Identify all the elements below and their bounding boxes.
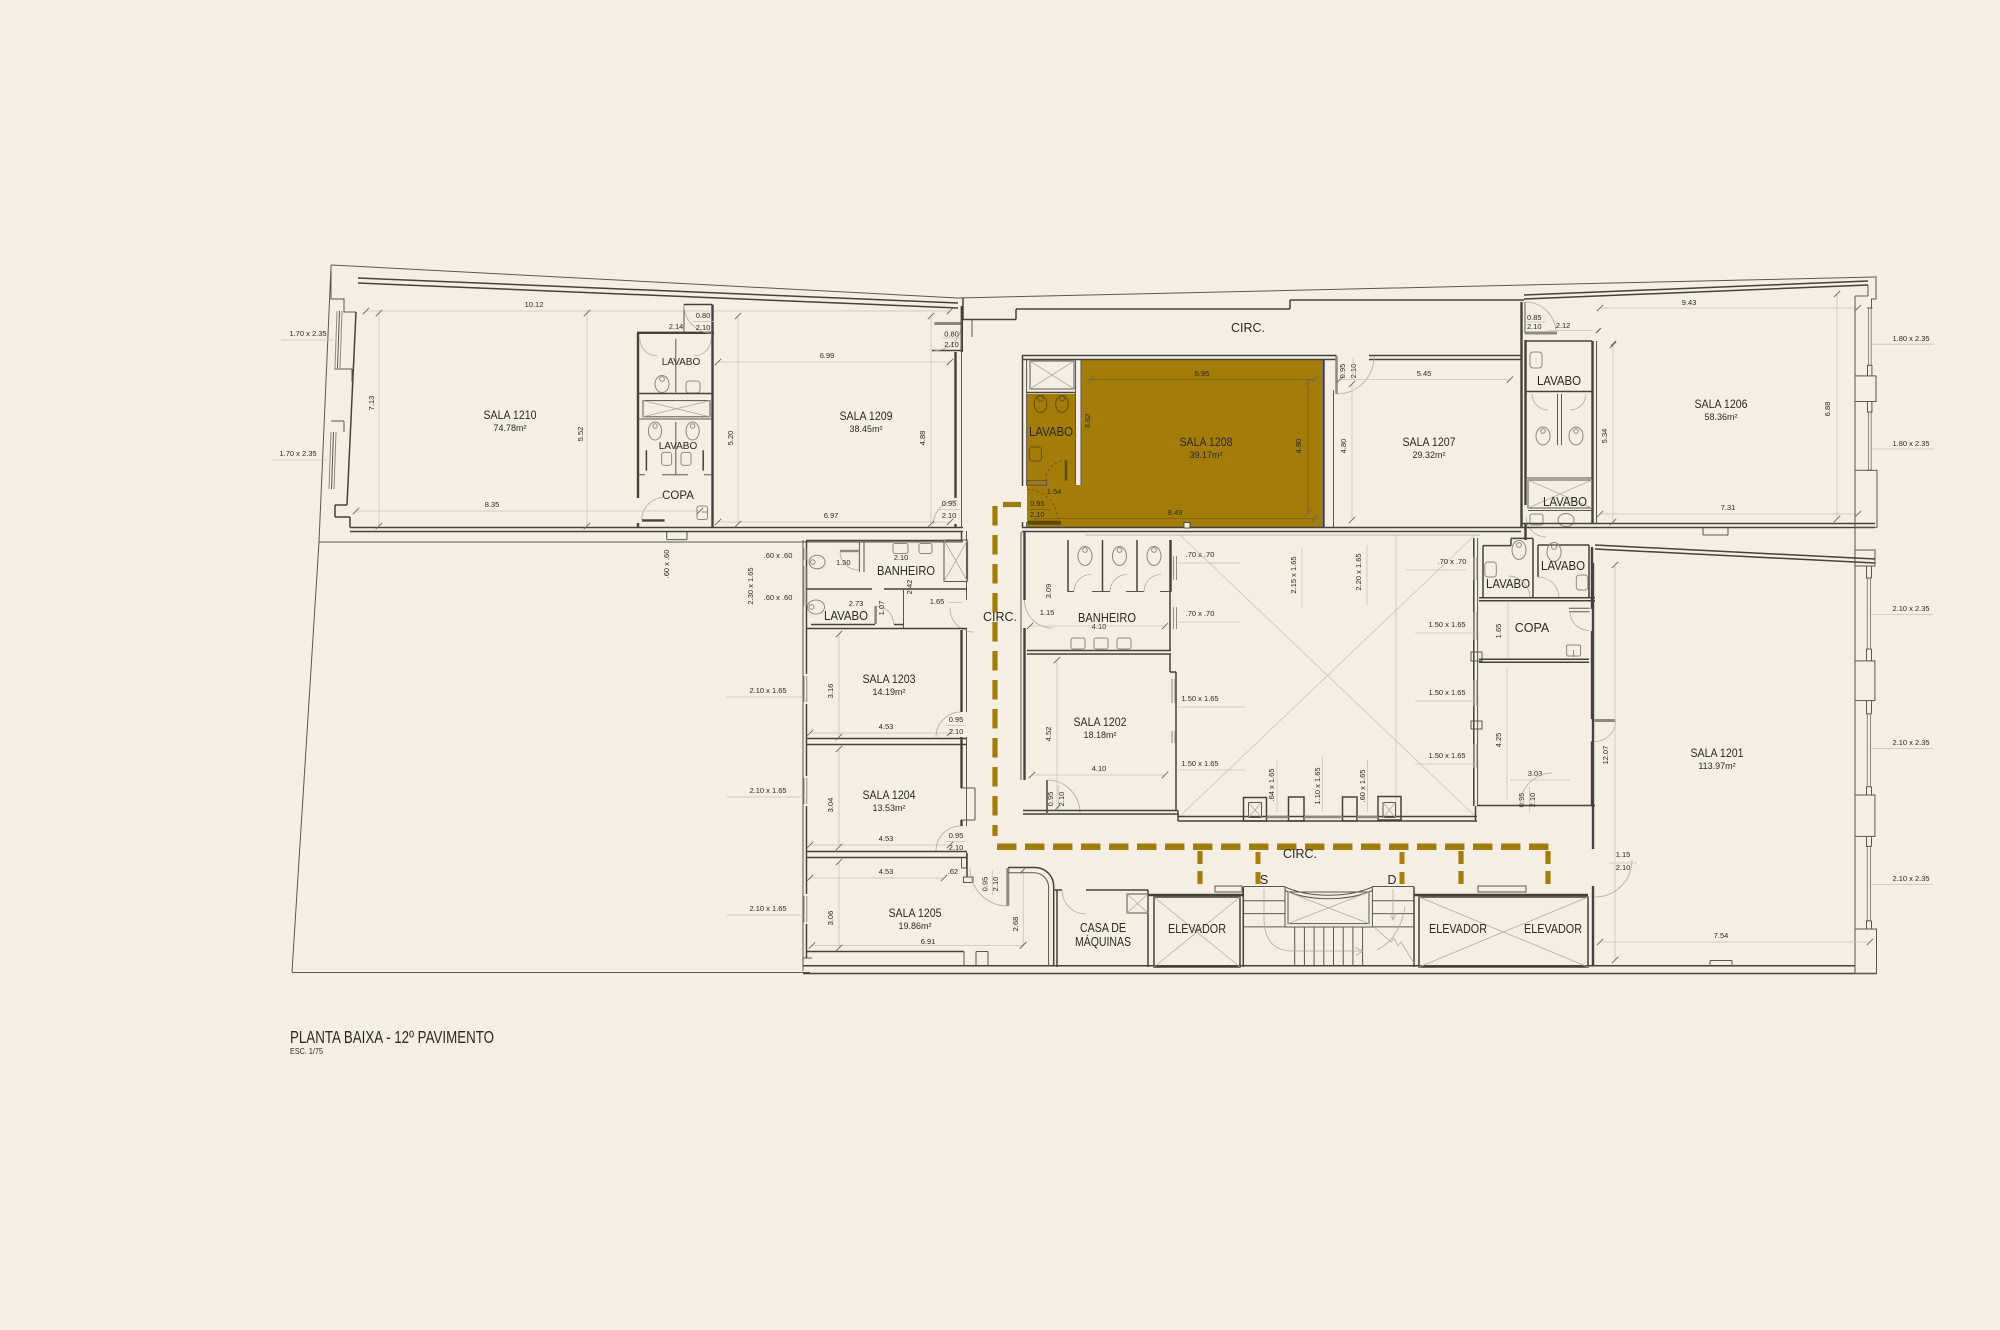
svg-text:SALA 1209: SALA 1209 <box>840 411 893 423</box>
svg-text:LAVABO: LAVABO <box>1543 495 1587 509</box>
svg-text:2.10: 2.10 <box>1527 322 1542 331</box>
svg-text:SALA 1207: SALA 1207 <box>1403 437 1456 449</box>
svg-text:2.10: 2.10 <box>944 340 959 349</box>
svg-text:14.19m²: 14.19m² <box>872 687 905 697</box>
svg-text:1.65: 1.65 <box>1494 624 1503 639</box>
svg-text:7.31: 7.31 <box>1721 503 1736 512</box>
svg-text:4.25: 4.25 <box>1494 733 1503 748</box>
svg-text:39.17m²: 39.17m² <box>1189 450 1222 460</box>
svg-text:113.97m²: 113.97m² <box>1698 761 1735 771</box>
svg-text:1.54: 1.54 <box>1047 487 1062 496</box>
svg-text:0.95: 0.95 <box>949 715 964 724</box>
svg-text:SALA 1210: SALA 1210 <box>484 410 537 422</box>
svg-text:.70 x .70: .70 x .70 <box>1186 609 1215 618</box>
svg-text:1.07: 1.07 <box>877 601 886 616</box>
svg-text:COPA: COPA <box>662 490 694 502</box>
svg-text:0.95: 0.95 <box>981 877 990 892</box>
svg-text:.62: .62 <box>948 867 958 876</box>
svg-text:.70 x .70: .70 x .70 <box>1438 557 1467 566</box>
svg-text:6.97: 6.97 <box>824 511 839 520</box>
svg-text:19.86m²: 19.86m² <box>898 921 931 931</box>
svg-text:.60 x .60: .60 x .60 <box>662 550 671 579</box>
svg-text:2.12: 2.12 <box>1556 321 1571 330</box>
svg-text:3.16: 3.16 <box>826 684 835 699</box>
svg-text:1.50 x 1.65: 1.50 x 1.65 <box>1181 694 1218 703</box>
svg-text:2.10: 2.10 <box>894 553 909 562</box>
svg-text:2.10 x 2.35: 2.10 x 2.35 <box>1892 604 1929 613</box>
svg-text:6.91: 6.91 <box>921 937 936 946</box>
svg-text:PLANTA BAIXA - 12º PAVIMENTO: PLANTA BAIXA - 12º PAVIMENTO <box>290 1027 494 1047</box>
svg-text:1.15: 1.15 <box>1616 850 1631 859</box>
svg-text:4.10: 4.10 <box>1092 622 1107 631</box>
svg-text:6.88: 6.88 <box>1823 402 1832 417</box>
svg-text:SALA 1202: SALA 1202 <box>1074 717 1127 729</box>
svg-text:0.95: 0.95 <box>942 499 957 508</box>
svg-text:0.95: 0.95 <box>949 831 964 840</box>
svg-text:4.80: 4.80 <box>1294 439 1303 454</box>
svg-text:2.10: 2.10 <box>942 511 957 520</box>
svg-text:4.80: 4.80 <box>1339 439 1348 454</box>
svg-text:LAVABO: LAVABO <box>824 609 868 623</box>
svg-text:2.10 x 1.65: 2.10 x 1.65 <box>749 786 786 795</box>
svg-text:3.03: 3.03 <box>1528 769 1543 778</box>
svg-text:MÁQUINAS: MÁQUINAS <box>1075 934 1131 949</box>
svg-text:2.10 x 1.65: 2.10 x 1.65 <box>749 904 786 913</box>
svg-text:SALA 1205: SALA 1205 <box>889 908 942 920</box>
svg-text:1.50 x 1.65: 1.50 x 1.65 <box>1428 688 1465 697</box>
svg-text:58.36m²: 58.36m² <box>1704 412 1737 422</box>
svg-text:ELEVADOR: ELEVADOR <box>1168 922 1226 936</box>
svg-text:1.80 x 2.35: 1.80 x 2.35 <box>1892 334 1929 343</box>
svg-text:S: S <box>1260 873 1268 887</box>
svg-text:CIRC.: CIRC. <box>1231 321 1265 335</box>
svg-text:3.09: 3.09 <box>1044 584 1053 599</box>
svg-text:13.53m²: 13.53m² <box>872 803 905 813</box>
svg-text:D: D <box>1387 873 1396 887</box>
svg-text:SALA 1203: SALA 1203 <box>863 674 916 686</box>
svg-text:10.12: 10.12 <box>525 300 544 309</box>
svg-text:.64 x 1.65: .64 x 1.65 <box>1267 769 1276 802</box>
svg-text:ESC. 1/75: ESC. 1/75 <box>290 1046 323 1056</box>
svg-text:1.15: 1.15 <box>1040 608 1055 617</box>
svg-text:0.95: 0.95 <box>1030 499 1045 508</box>
svg-text:2.10: 2.10 <box>1349 364 1358 379</box>
svg-text:3.04: 3.04 <box>826 798 835 813</box>
svg-text:8.35: 8.35 <box>485 500 500 509</box>
svg-text:6.99: 6.99 <box>820 351 835 360</box>
svg-text:1.10 x 1.65: 1.10 x 1.65 <box>1313 767 1322 804</box>
svg-text:LAVABO: LAVABO <box>659 441 698 452</box>
svg-text:2.10: 2.10 <box>1030 510 1045 519</box>
svg-text:SALA 1208: SALA 1208 <box>1180 437 1233 449</box>
svg-text:CASA DE: CASA DE <box>1080 921 1126 935</box>
svg-text:1.50 x 1.65: 1.50 x 1.65 <box>1428 620 1465 629</box>
svg-text:CIRC.: CIRC. <box>983 610 1017 624</box>
svg-text:1.50 x 1.65: 1.50 x 1.65 <box>1428 751 1465 760</box>
svg-text:LAVABO: LAVABO <box>1541 559 1585 573</box>
svg-text:29.32m²: 29.32m² <box>1412 450 1445 460</box>
svg-text:0.80: 0.80 <box>696 311 711 320</box>
svg-text:2.30 x 1.65: 2.30 x 1.65 <box>746 567 755 604</box>
svg-text:BANHEIRO: BANHEIRO <box>1078 611 1136 625</box>
svg-text:8.49: 8.49 <box>1168 508 1183 517</box>
svg-text:4.53: 4.53 <box>879 867 894 876</box>
svg-text:5.52: 5.52 <box>576 427 585 442</box>
svg-text:0.95: 0.95 <box>1338 364 1347 379</box>
svg-text:5.34: 5.34 <box>1600 429 1609 444</box>
svg-text:CIRC.: CIRC. <box>1283 847 1317 861</box>
svg-text:ELEVADOR: ELEVADOR <box>1429 922 1487 936</box>
svg-text:2.10 x 2.35: 2.10 x 2.35 <box>1892 738 1929 747</box>
svg-text:2.10: 2.10 <box>696 323 711 332</box>
svg-text:7.54: 7.54 <box>1714 931 1729 940</box>
svg-text:2.10 x 1.65: 2.10 x 1.65 <box>749 686 786 695</box>
svg-text:4.88: 4.88 <box>918 431 927 446</box>
svg-text:2.10: 2.10 <box>1616 863 1631 872</box>
svg-text:3.62: 3.62 <box>1083 414 1092 429</box>
svg-text:LAVABO: LAVABO <box>1029 425 1073 439</box>
svg-text:2.73: 2.73 <box>849 599 864 608</box>
svg-text:38.45m²: 38.45m² <box>849 424 882 434</box>
svg-text:3.06: 3.06 <box>826 911 835 926</box>
svg-text:2.42: 2.42 <box>905 580 914 595</box>
svg-text:0.85: 0.85 <box>1527 313 1542 322</box>
svg-text:0.80: 0.80 <box>944 330 959 339</box>
svg-text:1.80 x 2.35: 1.80 x 2.35 <box>1892 439 1929 448</box>
svg-text:ELEVADOR: ELEVADOR <box>1524 922 1582 936</box>
svg-text:4.53: 4.53 <box>879 722 894 731</box>
svg-text:5.45: 5.45 <box>1417 369 1432 378</box>
svg-text:2.10 x 2.35: 2.10 x 2.35 <box>1892 874 1929 883</box>
svg-text:4.10: 4.10 <box>1092 764 1107 773</box>
svg-text:SALA 1204: SALA 1204 <box>863 790 917 802</box>
svg-text:2.15 x 1.65: 2.15 x 1.65 <box>1289 556 1298 593</box>
svg-text:2.20 x 1.65: 2.20 x 1.65 <box>1354 553 1363 590</box>
svg-text:12.07: 12.07 <box>1601 746 1610 765</box>
svg-text:4.53: 4.53 <box>879 834 894 843</box>
svg-text:74.78m²: 74.78m² <box>493 423 526 433</box>
svg-text:.60 x 1.65: .60 x 1.65 <box>1358 770 1367 803</box>
svg-text:SALA 1206: SALA 1206 <box>1695 399 1748 411</box>
svg-text:SALA 1201: SALA 1201 <box>1691 748 1744 760</box>
svg-text:COPA: COPA <box>1515 621 1550 635</box>
svg-text:18.18m²: 18.18m² <box>1083 730 1116 740</box>
svg-text:7.13: 7.13 <box>367 396 376 411</box>
svg-text:6.95: 6.95 <box>1195 369 1210 378</box>
svg-text:5.20: 5.20 <box>726 431 735 446</box>
svg-text:.60 x .60: .60 x .60 <box>764 551 793 560</box>
svg-text:2.68: 2.68 <box>1011 917 1020 932</box>
svg-text:.60 x .60: .60 x .60 <box>764 593 793 602</box>
svg-text:BANHEIRO: BANHEIRO <box>877 564 935 578</box>
svg-text:LAVABO: LAVABO <box>1486 577 1530 591</box>
svg-text:2.14: 2.14 <box>669 322 684 331</box>
svg-text:LAVABO: LAVABO <box>662 357 701 368</box>
svg-text:LAVABO: LAVABO <box>1537 374 1581 388</box>
svg-text:1.70 x 2.35: 1.70 x 2.35 <box>289 329 326 338</box>
svg-text:1.50 x 1.65: 1.50 x 1.65 <box>1181 759 1218 768</box>
svg-text:9.43: 9.43 <box>1682 298 1697 307</box>
svg-text:1.70 x 2.35: 1.70 x 2.35 <box>279 449 316 458</box>
svg-text:1.65: 1.65 <box>930 597 945 606</box>
svg-text:4.52: 4.52 <box>1044 727 1053 742</box>
